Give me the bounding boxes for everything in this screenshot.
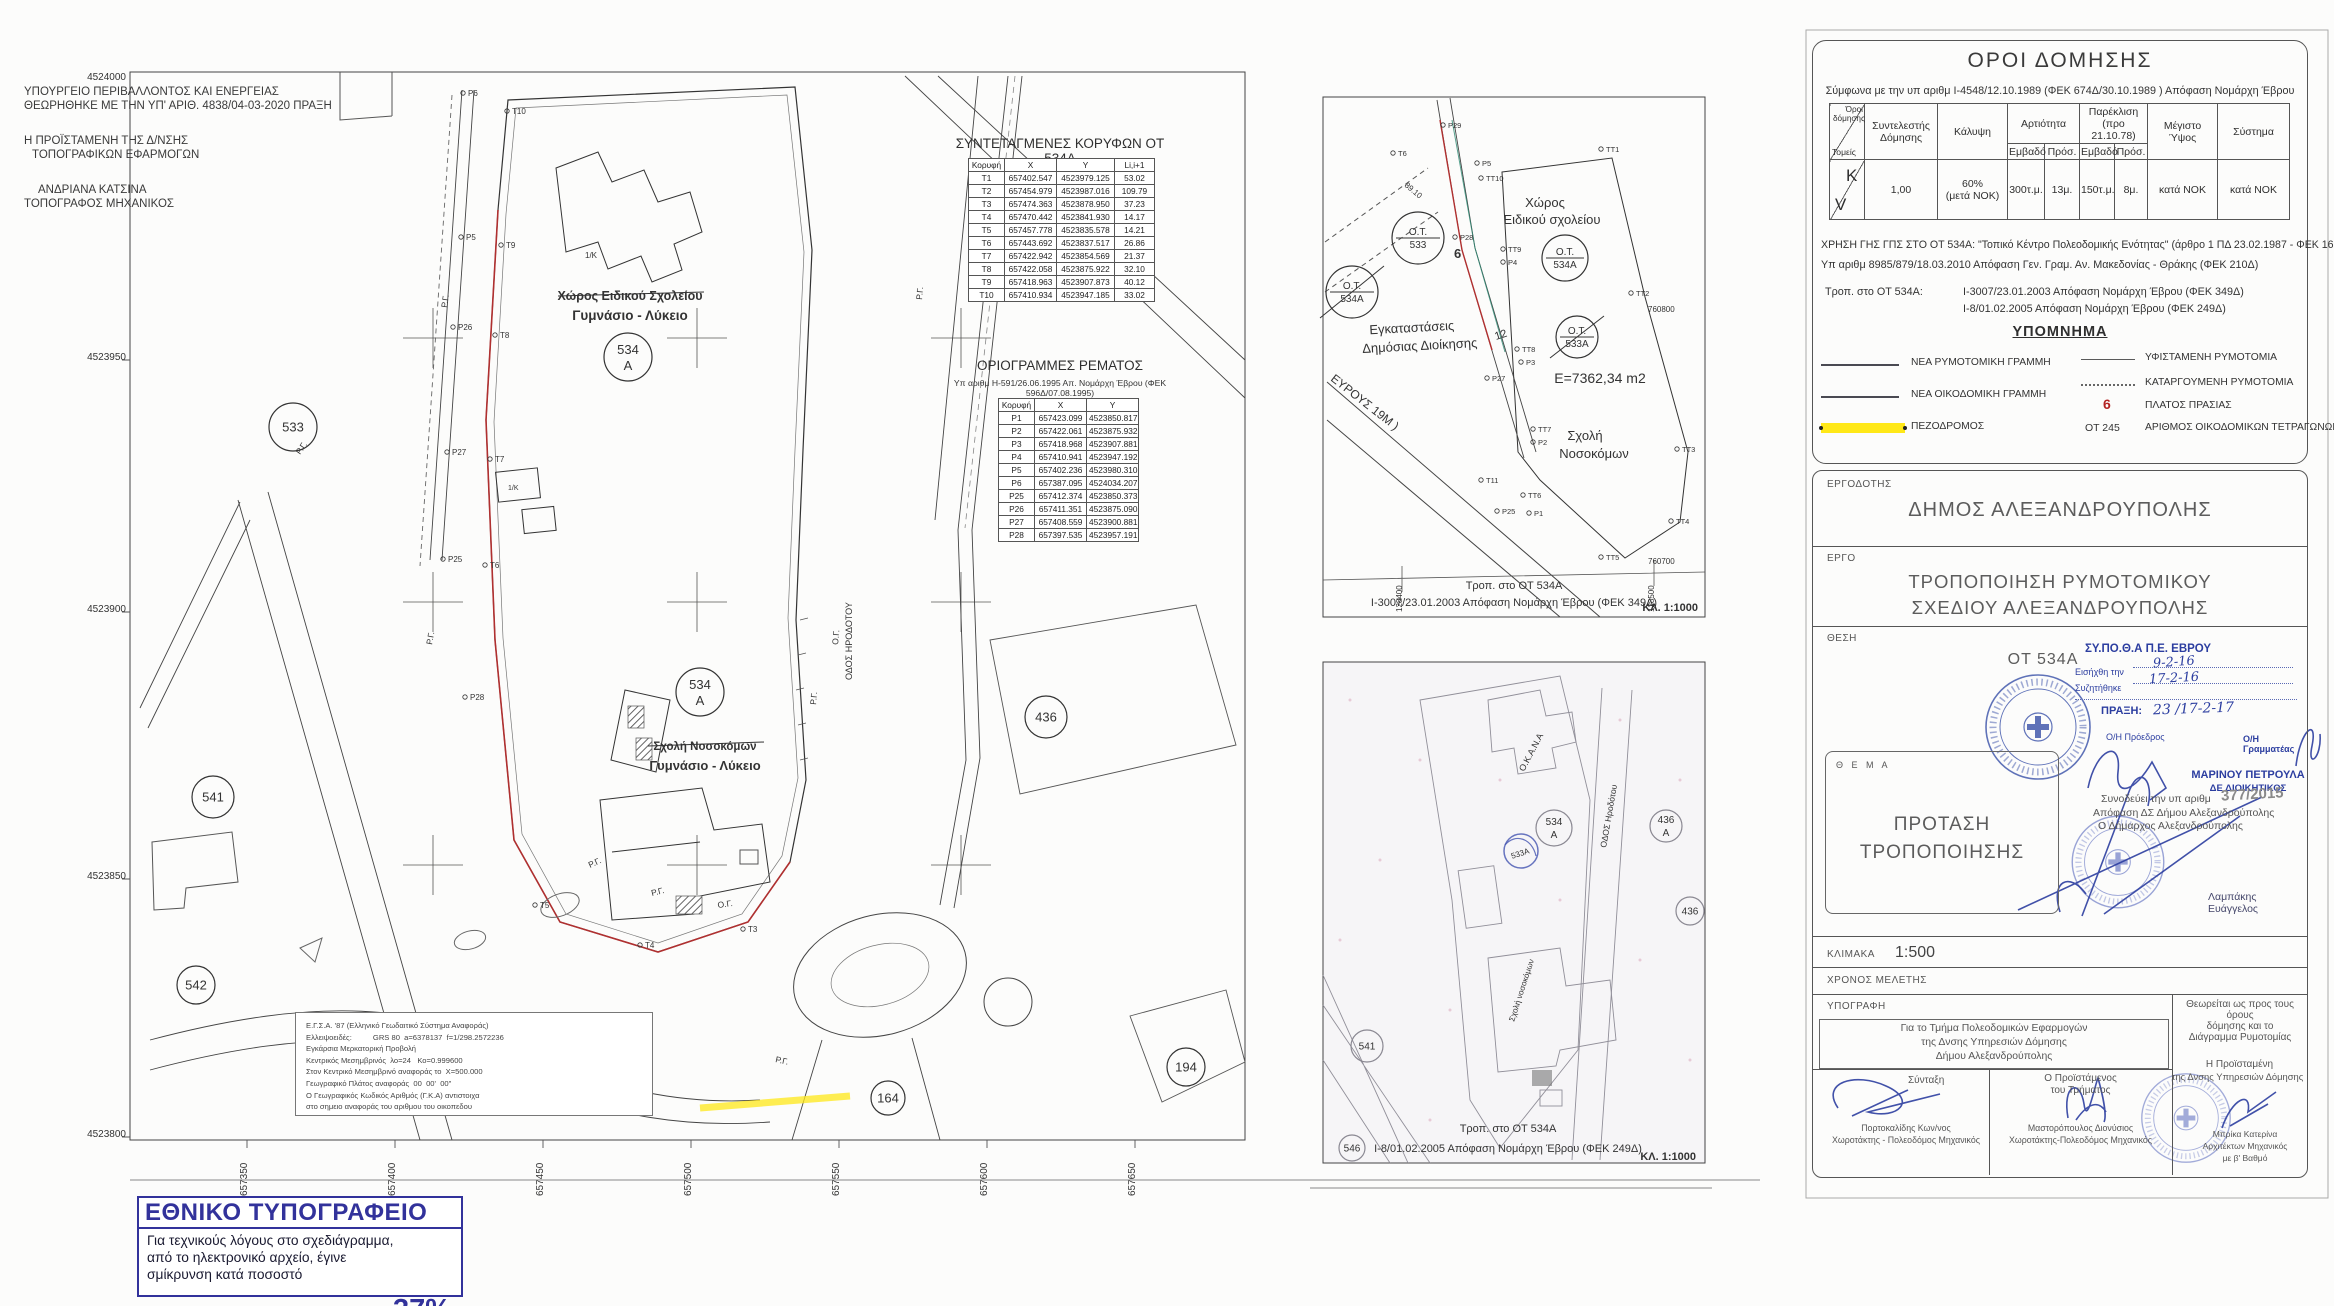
point-marker (483, 563, 487, 567)
block-circle-label: 164 (877, 1091, 899, 1106)
point-label: P28 (470, 693, 485, 702)
inset2-scale: ΚΛ. 1:1000 (1640, 1151, 1696, 1163)
synodeuei-text: Ο Δήμαρχος Αλεξανδρούπολης (2098, 820, 2243, 832)
legend-label: ΚΑΤΑΡΓΟΥΜΕΝΗ ΡΥΜΟΤΟΜΙΑ (2145, 377, 2293, 388)
coord-table: Κορυφή X Y Li,i+1 T1657402.5474523979.12… (968, 158, 1155, 302)
col-header: X (1035, 399, 1087, 412)
table-row: P2657422.0614523875.932 (999, 425, 1139, 438)
scanned-plan-sheet: 45240004523950452390045238504523800 6573… (0, 0, 2334, 1306)
inset1-label: Χώρος (1525, 195, 1565, 210)
approval-line: ΘΕΩΡΗΘΗΚΕ ΜΕ ΤΗΝ ΥΠ' ΑΡΙΘ. 4838/04-03-20… (24, 100, 354, 114)
approver-role: Η ΠΡΟΪΣΤΑΜΕΝΗ ΤΗΣ Δ/ΝΣΗΣ (24, 135, 354, 149)
legend-pezodromos-bar (1821, 423, 1905, 433)
point-label: P26 (458, 323, 473, 332)
engineer-role: Χωροτάκτης - Πολεοδόμος Μηχανικός (1813, 1135, 1999, 1145)
field-label: Θ Ε Μ Α (1836, 760, 1891, 770)
point-marker (1485, 376, 1489, 380)
inset1-num: 12 (1493, 328, 1508, 343)
handwritten-date: 9-2-16 (2153, 654, 2196, 672)
theoreitai-note: Θεωρείται ως προς τους όρους δόμησης και… (2175, 999, 2305, 1043)
table-row: P4657410.9414523947.192 (999, 451, 1139, 464)
table-row: T6657443.6924523837.51726.86 (969, 237, 1155, 250)
thema-line: ΤΡΟΠΟΠΟΙΗΣΗΣ (1826, 842, 2058, 864)
point-label: 657350 (239, 1162, 250, 1196)
legend-title: ΥΠΟΜΝΗΜΑ (1813, 324, 2307, 340)
field-label: ΕΡΓΟΔΟΤΗΣ (1827, 479, 1892, 490)
point-label: P3 (1526, 358, 1535, 367)
scale-value: 1:500 (1895, 944, 1935, 962)
land-use-note: ΧΡΗΣΗ ΓΗΣ ΓΠΣ ΣΤΟ ΟΤ 534Α: "Τοπικό Κέντρ… (1821, 239, 2334, 251)
zone-k: K (1846, 166, 1857, 186)
stamp-field: Συζητήθηκε (2075, 683, 2121, 693)
engineer-role: με β' Βαθμό (2185, 1153, 2305, 1163)
inset2-caption: Ι-8/01.02.2005 Απόφαση Νομάρχη Έβρου (ΦΕ… (1374, 1143, 1642, 1155)
point-marker (1495, 509, 1499, 513)
inset1-label-red: Εγκαταστάσεις (1369, 318, 1455, 337)
table-row: T7657422.9424523854.56921.37 (969, 250, 1155, 263)
list-item: Στον Κεντρικό Μεσημβρινό αναφοράς το Χ=5… (306, 1066, 642, 1078)
point-label: 4524000 (87, 72, 126, 83)
point-marker (1501, 260, 1505, 264)
point-label: TT5 (1606, 553, 1619, 562)
legend-line-new-rymotomiki (1821, 364, 1899, 366)
syntaxi-label: Σύνταξη (1908, 1075, 1944, 1086)
table-row: T4657470.4424523841.93014.17 (969, 211, 1155, 224)
inset1-caption: Τροπ. στο ΟΤ 534Α (1466, 580, 1563, 592)
block-circle-label: 436 (1035, 710, 1057, 725)
block-circle-label: Α (696, 693, 705, 708)
point-label: 657400 (387, 1162, 398, 1196)
block-circle-label: 542 (185, 978, 207, 993)
point-label: P27 (452, 448, 467, 457)
point-label: P5 (466, 233, 476, 242)
point-label: 4523950 (87, 352, 126, 363)
point-marker (1521, 493, 1525, 497)
street-name: ΟΔΟΣ ΗΡΟΔΟΤΟΥ (844, 602, 854, 680)
parcel-outline (486, 87, 812, 952)
national-printing-stamp: ΕΘΝΙΚΟ ΤΥΠΟΓΡΑΦΕΙΟ Για τεχνικούς λόγους … (137, 1196, 463, 1297)
col-header: Κορυφή (999, 399, 1035, 412)
col-header: Κάλυψη (1938, 104, 2008, 160)
struck-label-top: Χώρος Ειδικού Σχολείου (557, 289, 702, 303)
point-label: TT2 (1636, 289, 1649, 298)
point-label: T3 (748, 925, 758, 934)
katargoumeni-line (420, 95, 452, 566)
block-circle (604, 333, 652, 381)
red-label-mid: Γυμνάσιο - Λύκειο (649, 758, 760, 773)
block-circle-label: 436 (1658, 815, 1675, 826)
table-row: T5657457.7784523835.57814.21 (969, 224, 1155, 237)
table-row: P6657387.0954524034.207 (999, 477, 1139, 490)
point-label: TT3 (1682, 445, 1695, 454)
legend-label: ΠΕΖΟΔΡΟΜΟΣ (1911, 421, 1984, 432)
point-label: P6 (468, 89, 478, 98)
point-label: 657650 (1127, 1162, 1138, 1196)
grid-crosses (403, 308, 991, 895)
point-label: Ρ.Γ. (587, 855, 603, 870)
point-label: Ο.Γ. (830, 629, 841, 645)
approver-role: ΤΟΠΟΓΡΑΦΙΚΩΝ ΕΦΑΡΜΟΓΩΝ (24, 149, 354, 163)
point-marker (463, 695, 467, 699)
col-header: Μέγιστο Ύψος (2148, 104, 2218, 160)
building-label: 1/Κ (508, 485, 519, 492)
inset-1-texts: P29T6P5TT10P28TT9P4TT8P3P27TT7P2T11P25P1… (1320, 121, 1698, 614)
point-label: TT4 (1676, 517, 1689, 526)
table-row: T3657474.3634523878.95037.23 (969, 198, 1155, 211)
point-label: Ρ.Γ. (439, 294, 451, 308)
field-label: ΚΛΙΜΑΚΑ (1827, 949, 1875, 960)
point-label: T11 (1486, 476, 1498, 485)
np-body: Για τεχνικούς λόγους στο σχεδιάγραμμα, α… (139, 1229, 461, 1283)
block-circle-label: Α (624, 358, 633, 373)
point-label: T8 (500, 331, 510, 340)
point-label: TT7 (1538, 425, 1551, 434)
block-circle-label: 533Α (1565, 339, 1589, 350)
inset1-area: Ε=7362,34 m2 (1554, 370, 1646, 386)
sheet-edge-lines (130, 1180, 1760, 1188)
stamp-field: Εισήχθη την (2075, 667, 2124, 677)
field-label: ΥΠΟΓΡΑΦΗ (1827, 1001, 1886, 1012)
col-header: X (1005, 159, 1057, 172)
stream-table-title: ΟΡΙΟΓΡΑΜΜΕΣ ΡΕΜΑΤΟΣ (952, 358, 1168, 373)
point-label: P4 (1508, 258, 1517, 267)
col-header: Σύστημα (2218, 104, 2290, 160)
table-cell: 60% (μετά ΝΟΚ) (1938, 160, 2008, 220)
col-header: Y (1057, 159, 1115, 172)
ergo-line: ΣΧΕΔΙΟΥ ΑΛΕΞΑΝΔΡΟΥΠΟΛΗΣ (1813, 597, 2307, 619)
secretary-name: ΜΑΡΙΝΟΥ ΠΕΤΡΟΥΛΑ (2173, 769, 2323, 781)
department-box: Για το Τμήμα Πολεοδομικών Εφαρμογών της … (1819, 1019, 2169, 1069)
point-marker (1479, 478, 1483, 482)
block-circle (676, 668, 724, 716)
block-circle-label: Ο.Τ. (1556, 247, 1574, 258)
point-label: TT9 (1508, 245, 1521, 254)
corner-label: Τομείς (1832, 147, 1856, 157)
engineer-name: Μαστορόπουλος Διονύσιος (1989, 1123, 2172, 1133)
praxi-label: ΠΡΑΞΗ: (2101, 705, 2142, 717)
table-row: P27657408.5594523900.881 (999, 516, 1139, 529)
list-item: Ελλειψοειδές: GRS 80 a=6378137 f=1/298.2… (306, 1032, 642, 1044)
point-label: P5 (1482, 159, 1491, 168)
col-header: Li,i+1 (1115, 159, 1155, 172)
trop-entry: Ι-3007/23.01.2003 Απόφαση Νομάρχη Έβρου … (1963, 286, 2244, 298)
point-label: TT10 (1486, 174, 1504, 183)
point-marker (741, 927, 745, 931)
point-label: Ρ.Γ. (424, 631, 436, 646)
point-label: 4523800 (87, 1129, 126, 1140)
table-cell: 1,00 (1865, 160, 1938, 220)
point-marker (488, 457, 492, 461)
oroi-title: ΟΡΟΙ ΔΟΜΗΣΗΣ (1813, 49, 2307, 73)
svg-text:760800: 760800 (1648, 305, 1675, 314)
list-item: Γεωγραφικό Πλάτος αναφοράς 00 00' 00" (306, 1078, 642, 1090)
pezodromos-mark (700, 1096, 850, 1108)
trop-label: Τροπ. στο ΟΤ 534Α: (1825, 286, 1923, 298)
point-label: 657450 (535, 1162, 546, 1196)
dief-label: της Δνσης Υπηρεσιών Δόμησης (2165, 1071, 2310, 1082)
legend-ot-symbol: ΟΤ 245 (2085, 422, 2120, 434)
point-label: TT6 (1528, 491, 1541, 500)
block-circle-label: Α (1551, 830, 1558, 841)
block-circle-label: 534 (689, 677, 711, 692)
point-marker (1519, 360, 1523, 364)
oroi-subtitle: Σύμφωνα με την υπ αριθμ Ι-4548/12.10.198… (1813, 85, 2307, 97)
ergo-line: ΤΡΟΠΟΠΟΙΗΣΗ ΡΥΜΟΤΟΜΙΚΟΥ (1813, 571, 2307, 593)
dief-label: Η Προϊσταμένη (2172, 1059, 2307, 1070)
survey-points: P6T10P5T9P26T8P27T7P25T6P28T5T4T3 (441, 89, 758, 950)
handwritten-date: 17-2-16 (2149, 670, 2200, 688)
point-marker (1479, 176, 1483, 180)
point-label: TT8 (1522, 345, 1535, 354)
inset1-label-red: Δημόσιας Διοίκησης (1362, 335, 1478, 356)
legend-line-katargoumeni (2081, 384, 2135, 386)
table-row: T9657418.9634523907.87340.12 (969, 276, 1155, 289)
block-circle-label: 194 (1175, 1060, 1197, 1075)
table-row: T1657402.5474523979.12553.02 (969, 172, 1155, 185)
point-marker (493, 333, 497, 337)
oroi-domisis-panel: ΟΡΟΙ ΔΟΜΗΣΗΣ Σύμφωνα με την υπ αριθμ Ι-4… (1812, 40, 2308, 464)
col-header: Y (1087, 399, 1139, 412)
list-item: στο σημειο αναφοράς του αριθμου του οικο… (306, 1101, 642, 1113)
block-circle-label: Ο.Τ. (1409, 227, 1427, 238)
point-marker (1675, 447, 1679, 451)
point-label: T7 (495, 455, 505, 464)
inset1-label: Σχολή (1567, 428, 1602, 443)
col-header: Παρέκλιση (προ 21.10.78) (2080, 104, 2148, 144)
point-marker (1531, 427, 1535, 431)
point-label: T5 (540, 901, 550, 910)
block-circle-label: 541 (202, 790, 224, 805)
table-row: P3657418.9684523907.881 (999, 438, 1139, 451)
ergodotis-value: ΔΗΜΟΣ ΑΛΕΞΑΝΔΡΟΥΠΟΛΗΣ (1813, 499, 2307, 522)
inset1-caption: Ι-3007/23.01.2003 Απόφαση Νομάρχη Έβρου … (1371, 597, 1657, 609)
point-label: P28 (1460, 233, 1473, 242)
point-marker (441, 557, 445, 561)
ministry-line: ΥΠΟΥΡΓΕΙΟ ΠΕΡΙΒΑΛΛΟΝΤΟΣ ΚΑΙ ΕΝΕΡΓΕΙΑΣ (24, 86, 354, 100)
point-marker (1527, 511, 1531, 515)
inset1-dim: 89.10 (1403, 181, 1425, 201)
axis-bottom: 6573506574006574506575006575506576006576… (239, 1162, 1138, 1196)
point-label: 4523850 (87, 871, 126, 882)
handwritten-praxi: 23 /17-2-17 (2153, 700, 2234, 719)
table-row: P25657412.3744523850.373 (999, 490, 1139, 503)
inset1-street: ΕΥΡΟΥΣ 19Μ ) (1328, 371, 1402, 433)
point-label: Ρ.Γ. (914, 286, 925, 300)
point-label: Ρ.Γ. (650, 885, 665, 898)
inset2-caption: Τροπ. στο ΟΤ 534Α (1460, 1123, 1557, 1135)
approval-block: ΥΠΟΥΡΓΕΙΟ ΠΕΡΙΒΑΛΛΟΝΤΟΣ ΚΑΙ ΕΝΕΡΓΕΙΑΣ ΘΕ… (24, 86, 354, 211)
mayor-name: Λαμπάκης Ευάγγελος (2208, 891, 2307, 915)
point-marker (499, 243, 503, 247)
synodeuei-text: Συνοδεύει την υπ αριθμ (2101, 793, 2211, 805)
inset-1 (1323, 97, 1705, 617)
grammateas-label: Ο/Η Γραμματέας (2243, 734, 2307, 754)
block-circle-label: 546 (1344, 1144, 1361, 1155)
point-marker (451, 325, 455, 329)
point-marker (1629, 291, 1633, 295)
legend-label: ΑΡΙΘΜΟΣ ΟΙΚΟΔΟΜΙΚΩΝ ΤΕΤΡΑΓΩΝΩΝ (2145, 422, 2334, 433)
point-label: P25 (1502, 507, 1515, 516)
point-marker (1669, 519, 1673, 523)
table-row: P1657423.0994523850.817 (999, 412, 1139, 425)
axis-left: 45240004523950452390045238504523800 (87, 72, 126, 1140)
point-label: Ρ.Γ. (775, 1054, 790, 1066)
table-row: P26657411.3514523875.090 (999, 503, 1139, 516)
block-circle-label: 541 (1359, 1042, 1376, 1053)
legend-label: ΥΦΙΣΤΑΜΕΝΗ ΡΥΜΟΤΟΜΙΑ (2145, 352, 2277, 363)
block-circle-label: 436 (1682, 907, 1699, 918)
point-label: 657600 (979, 1162, 990, 1196)
trop-entry: Ι-8/01.02.2005 Απόφαση Νομάρχη Έβρου (ΦΕ… (1963, 303, 2226, 315)
point-marker (445, 450, 449, 454)
point-label: T10 (512, 107, 526, 116)
point-marker (1599, 147, 1603, 151)
point-label: 4523900 (87, 604, 126, 615)
engineer-role: Αρχιτέκτων Μηχανικός (2185, 1141, 2305, 1151)
list-item: Κεντρικός Μεσημβρινός λο=24 Κο=0.999600 (306, 1055, 642, 1067)
point-marker (459, 235, 463, 239)
thema-box: Θ Ε Μ Α ΠΡΟΤΑΣΗ ΤΡΟΠΟΠΟΙΗΣΗΣ (1825, 751, 2059, 914)
point-marker (1391, 151, 1395, 155)
zone-v: V (1835, 195, 1846, 215)
list-item: Ε.Γ.Σ.Α. '87 (Ελληνικό Γεωδαιτικό Σύστημ… (306, 1020, 642, 1032)
parcel-inner-line (494, 95, 804, 943)
stream-table: Κορυφή X Y P1657423.0994523850.817P26574… (998, 398, 1139, 542)
point-marker (1475, 161, 1479, 165)
synodeuei-text: Απόφαση ΔΣ Δήμου Αλεξανδρούπολης (2093, 807, 2274, 819)
building-label: 1/Κ (585, 251, 598, 260)
legend-label: ΠΛΑΤΟΣ ΠΡΑΣΙΑΣ (2145, 400, 2232, 411)
oroi-table: Όροι δόμησης Τομείς Συντελεστής Δόμησης … (1829, 103, 2290, 220)
block-circle-label: 534 (617, 342, 639, 357)
legend-prasia-symbol: 6 (2103, 396, 2111, 412)
col-header: Κορυφή (969, 159, 1005, 172)
table-row: T10657410.9344523947.18533.02 (969, 289, 1155, 302)
point-label: 657550 (831, 1162, 842, 1196)
point-label: T4 (645, 941, 655, 950)
inset-2: 533Α 534Α436Α436541546 Ο.Κ.Α.Ν.Α Σχολή ν… (1323, 662, 1705, 1163)
field-label: ΘΕΣΗ (1827, 633, 1857, 644)
point-marker (1501, 247, 1505, 251)
point-label: P2 (1538, 438, 1547, 447)
corner-label: Όροι δόμησης (1833, 106, 1863, 123)
egsa-info-box: Ε.Γ.Σ.Α. '87 (Ελληνικό Γεωδαιτικό Σύστημ… (295, 1012, 653, 1116)
point-marker (1453, 235, 1457, 239)
proistamenos-label: του Τμήματος (1989, 1085, 2172, 1096)
np-percent: 37% (393, 1302, 451, 1306)
table-row: P28657397.5354523957.191 (999, 529, 1139, 542)
building-school (556, 152, 702, 282)
point-label: T9 (506, 241, 516, 250)
decision-number: 377/2015 (2221, 784, 2284, 804)
title-block: ΕΡΓΟΔΟΤΗΣ ΔΗΜΟΣ ΑΛΕΞΑΝΔΡΟΥΠΟΛΗΣ ΕΡΓΟ ΤΡΟ… (1812, 470, 2308, 1178)
list-item: Εγκάρσια Μερκατορική Προβολή (306, 1043, 642, 1055)
point-label: P29 (1448, 121, 1461, 130)
inset1-scale: ΚΛ. 1:1000 (1642, 602, 1698, 614)
approver-title: ΤΟΠΟΓΡΑΦΟΣ ΜΗΧΑΝΙΚΟΣ (24, 198, 354, 212)
list-item: Ο Γεωγραφικός Κωδικός Αριθμός (Γ.Κ.Α) αν… (306, 1090, 642, 1102)
engineer-name: Μπρίκα Κατερίνα (2185, 1129, 2305, 1139)
col-header: Αρτιότητα (2008, 104, 2080, 144)
point-label: T6 (490, 561, 500, 570)
approver-name: ΑΝΔΡΙΑΝΑ ΚΑΤΣΙΝΑ (24, 184, 354, 198)
thema-line: ΠΡΟΤΑΣΗ (1826, 814, 2058, 836)
point-label: P27 (1492, 374, 1505, 383)
point-label: Ρ.Γ. (808, 691, 819, 705)
field-label: ΕΡΓΟ (1827, 553, 1856, 564)
legend-line-new-oikodomiki (1821, 396, 1899, 398)
proistamenos-label: Ο Προϊστάμενος (1989, 1073, 2172, 1084)
engineer-name: Πορτοκαλίδης Κων/νος (1823, 1123, 1989, 1133)
field-label: ΧΡΟΝΟΣ ΜΕΛΕΤΗΣ (1827, 975, 1927, 986)
block-circle-label: Α (1663, 828, 1670, 839)
block-circle-label: 533 (282, 420, 304, 435)
proedros-label: Ο/Η Πρόεδρος (2106, 732, 2165, 742)
prasia-width: 6 (1454, 246, 1461, 261)
np-title: ΕΘΝΙΚΟ ΤΥΠΟΓΡΑΦΕΙΟ (139, 1198, 461, 1229)
block-circle-label: 534Α (1340, 294, 1364, 305)
legend-line-yfistameni (2081, 359, 2135, 360)
point-label: T6 (1398, 149, 1407, 158)
stream-table-subtitle: Υπ αριθμ Η-591/26.06.1995 Απ. Νομάρχη Έβ… (940, 378, 1180, 398)
point-label: Ρ.Γ. (293, 440, 309, 456)
point-label: P25 (448, 555, 463, 564)
point-label: Ο.Γ. (717, 898, 733, 910)
point-marker (1515, 347, 1519, 351)
point-label: 657500 (683, 1162, 694, 1196)
legend-label: ΝΕΑ ΡΥΜΟΤΟΜΙΚΗ ΓΡΑΜΜΗ (1911, 357, 2051, 368)
block-circle-label: 534 (1546, 817, 1563, 828)
inset1-label: Ειδικού σχολείου (1504, 212, 1601, 227)
engineer-role: Χωροτάκτης-Πολεοδόμος Μηχανικός (1989, 1135, 2172, 1145)
rg-og-labels: Ρ.Γ.Ρ.Γ.Ρ.Γ.Ρ.Γ.Ρ.Γ.Ο.Γ.Ο.Γ.Ρ.Γ.Ρ.Γ.Ρ.Γ. (293, 286, 925, 1066)
point-marker (533, 903, 537, 907)
svg-text:760700: 760700 (1648, 557, 1675, 566)
inset1-label: Νοσοκόμων (1559, 446, 1629, 461)
decision-note: Υπ αριθμ 8985/879/18.03.2010 Απόφαση Γεν… (1821, 259, 2258, 271)
table-row: T8657422.0584523875.92232.10 (969, 263, 1155, 276)
point-label: TT1 (1606, 145, 1619, 154)
point-marker (1599, 555, 1603, 559)
red-label-top: Γυμνάσιο - Λύκειο (572, 308, 688, 323)
block-circle-label: 534Α (1553, 260, 1577, 271)
table-row: T2657454.9794523987.016109.79 (969, 185, 1155, 198)
legend-label: ΝΕΑ ΟΙΚΟΔΟΜΙΚΗ ΓΡΑΜΜΗ (1911, 389, 2046, 400)
point-label: P1 (1534, 509, 1543, 518)
table-row: P5657402.2364523980.310 (999, 464, 1139, 477)
block-circle-label: 533 (1410, 240, 1427, 251)
col-header: Συντελεστής Δόμησης (1865, 104, 1938, 160)
